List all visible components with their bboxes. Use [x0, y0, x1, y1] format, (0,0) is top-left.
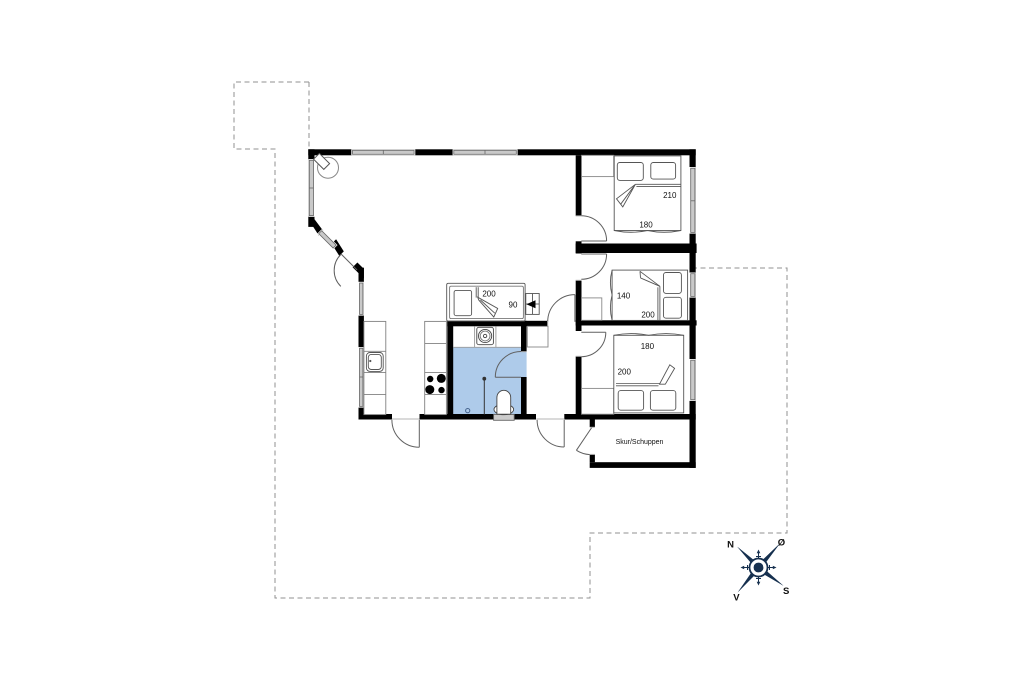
svg-text:N: N — [727, 540, 734, 551]
svg-text:S: S — [783, 586, 789, 597]
svg-text:210: 210 — [663, 191, 677, 200]
svg-text:180: 180 — [639, 221, 653, 230]
svg-text:Skur/Schuppen: Skur/Schuppen — [616, 439, 664, 446]
svg-text:90: 90 — [509, 301, 518, 310]
svg-text:Ø: Ø — [778, 538, 785, 549]
svg-text:V: V — [733, 593, 740, 604]
svg-text:200: 200 — [482, 290, 496, 299]
svg-text:180: 180 — [641, 342, 655, 351]
svg-text:140: 140 — [617, 292, 631, 301]
svg-text:200: 200 — [618, 368, 632, 377]
svg-text:200: 200 — [641, 310, 655, 319]
